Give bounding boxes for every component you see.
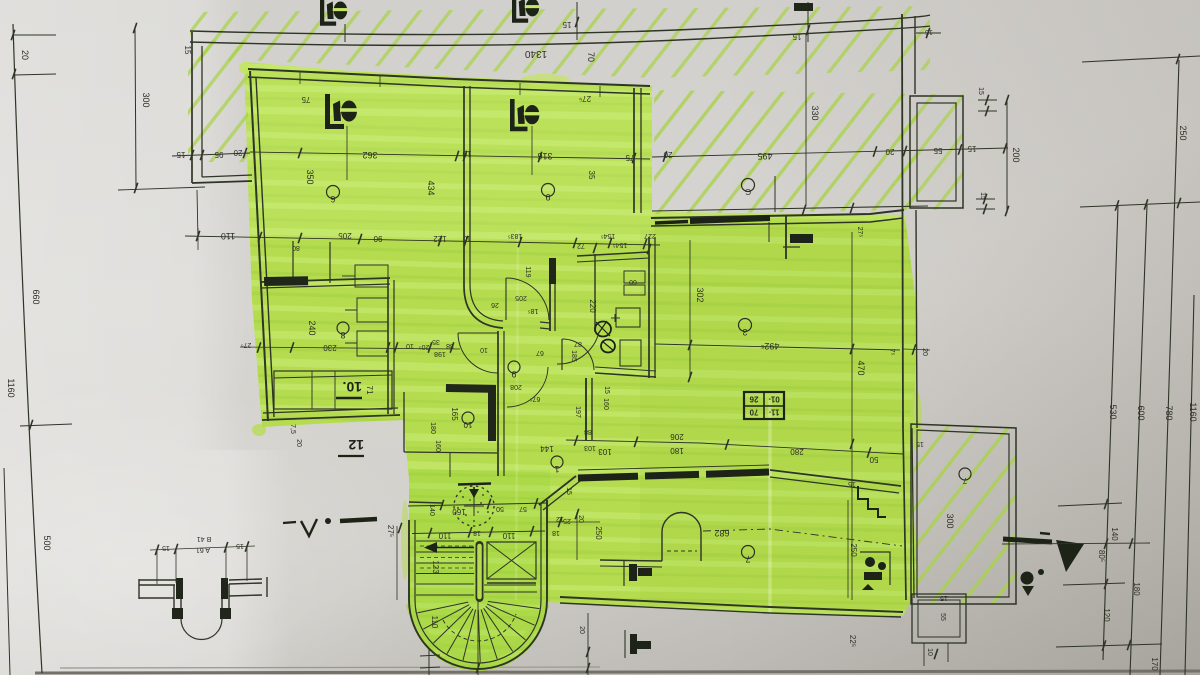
svg-text:250: 250 [849, 543, 858, 557]
svg-text:25: 25 [563, 517, 571, 524]
svg-text:495: 495 [757, 151, 772, 161]
svg-text:154⁵: 154⁵ [601, 232, 616, 239]
svg-text:1: 1 [554, 464, 559, 474]
svg-text:682: 682 [714, 528, 729, 538]
svg-text:165: 165 [450, 407, 459, 421]
svg-text:20: 20 [20, 50, 30, 60]
svg-text:35: 35 [432, 338, 440, 345]
svg-text:140: 140 [1110, 527, 1119, 541]
svg-text:B 41: B 41 [197, 535, 212, 542]
svg-text:120: 120 [1102, 608, 1111, 622]
svg-text:57: 57 [519, 505, 527, 512]
svg-text:10.: 10. [343, 379, 362, 395]
svg-text:7: 7 [745, 554, 750, 564]
svg-text:67: 67 [536, 349, 544, 356]
svg-text:205: 205 [338, 231, 352, 240]
svg-text:95: 95 [214, 150, 223, 159]
svg-text:110: 110 [221, 231, 235, 241]
svg-text:15: 15 [916, 440, 924, 447]
svg-text:316: 316 [537, 151, 552, 161]
svg-text:27⁵: 27⁵ [856, 227, 863, 238]
svg-text:7⁵: 7⁵ [888, 349, 895, 356]
svg-text:6: 6 [330, 194, 335, 204]
svg-text:7: 7 [962, 476, 967, 485]
svg-text:67⁵: 67⁵ [530, 395, 541, 402]
svg-text:88: 88 [584, 428, 592, 435]
svg-text:27⁵: 27⁵ [241, 341, 252, 348]
svg-text:15: 15 [176, 150, 185, 159]
svg-text:70: 70 [586, 52, 596, 62]
svg-text:302: 302 [695, 287, 705, 302]
svg-text:103: 103 [584, 444, 596, 451]
svg-text:75: 75 [625, 153, 634, 162]
svg-text:9: 9 [545, 192, 550, 202]
svg-text:300: 300 [141, 92, 151, 107]
svg-text:20⁵: 20⁵ [419, 343, 430, 350]
svg-text:35: 35 [587, 171, 596, 180]
svg-text:160: 160 [452, 507, 466, 516]
svg-text:300: 300 [945, 513, 955, 528]
svg-text:160: 160 [434, 440, 441, 452]
svg-text:15: 15 [162, 544, 170, 551]
svg-text:170: 170 [1150, 657, 1159, 671]
svg-text:160: 160 [602, 398, 609, 410]
svg-text:20: 20 [885, 147, 894, 156]
svg-text:1160: 1160 [6, 378, 16, 397]
svg-text:240: 240 [307, 320, 317, 335]
svg-text:140: 140 [428, 504, 435, 516]
svg-text:50: 50 [869, 455, 878, 464]
svg-text:185: 185 [570, 350, 577, 362]
svg-text:250: 250 [594, 526, 603, 540]
svg-text:20: 20 [295, 439, 302, 447]
svg-text:10: 10 [926, 648, 933, 656]
svg-text:18: 18 [552, 529, 560, 536]
svg-text:15: 15 [979, 192, 986, 200]
svg-text:90: 90 [373, 234, 382, 243]
svg-text:197: 197 [574, 406, 581, 418]
svg-text:154⁵: 154⁵ [613, 241, 628, 248]
svg-text:70: 70 [749, 408, 758, 417]
svg-text:122: 122 [433, 234, 447, 243]
svg-text:87: 87 [574, 340, 582, 347]
svg-text:A 61: A 61 [196, 546, 210, 553]
svg-text:200: 200 [1011, 147, 1021, 162]
svg-text:500: 500 [42, 535, 52, 550]
svg-text:11·: 11· [768, 408, 779, 417]
svg-text:G: G [745, 187, 751, 196]
svg-text:330: 330 [810, 105, 820, 120]
svg-text:183⁵: 183⁵ [508, 232, 523, 239]
svg-text:1160: 1160 [1188, 402, 1198, 421]
svg-text:180: 180 [1132, 582, 1141, 596]
svg-text:26: 26 [749, 395, 758, 404]
svg-text:205: 205 [515, 294, 527, 301]
svg-text:8: 8 [340, 330, 345, 340]
svg-text:20: 20 [921, 348, 928, 356]
svg-text:01·: 01· [768, 395, 780, 404]
svg-text:18⁵: 18⁵ [528, 307, 539, 314]
svg-text:180: 180 [429, 422, 436, 434]
svg-text:144: 144 [540, 444, 554, 453]
svg-text:20: 20 [233, 148, 242, 157]
svg-text:20: 20 [663, 150, 672, 159]
svg-text:15: 15 [940, 594, 948, 601]
svg-text:119: 119 [524, 266, 531, 277]
svg-text:15: 15 [792, 32, 801, 41]
svg-text:27⁵: 27⁵ [579, 94, 591, 103]
svg-text:180: 180 [670, 446, 684, 455]
svg-text:110: 110 [438, 531, 451, 540]
svg-text:27⁵: 27⁵ [386, 525, 395, 537]
svg-text:88: 88 [446, 342, 454, 349]
svg-text:10: 10 [406, 342, 414, 349]
svg-text:530: 530 [1108, 404, 1118, 419]
svg-text:110: 110 [430, 616, 439, 629]
svg-text:600: 600 [1136, 405, 1146, 420]
svg-text:15: 15 [562, 20, 571, 29]
svg-text:80: 80 [292, 244, 300, 251]
svg-text:50: 50 [496, 505, 504, 512]
svg-text:250: 250 [1178, 125, 1188, 140]
svg-text:15: 15 [603, 386, 610, 394]
svg-text:434: 434 [426, 180, 436, 195]
svg-text:198: 198 [434, 350, 446, 357]
svg-text:3: 3 [742, 327, 747, 337]
svg-text:71: 71 [365, 386, 374, 395]
svg-text:15: 15 [848, 480, 856, 487]
svg-text:7,5: 7,5 [289, 424, 296, 434]
svg-text:1340: 1340 [524, 48, 547, 59]
svg-text:26: 26 [491, 301, 499, 308]
svg-text:227: 227 [644, 232, 656, 239]
svg-text:350: 350 [305, 169, 315, 184]
svg-text:10: 10 [463, 420, 472, 429]
svg-text:362: 362 [362, 150, 377, 160]
svg-text:220: 220 [588, 299, 597, 313]
svg-text:75: 75 [301, 95, 310, 104]
svg-text:72: 72 [577, 242, 585, 249]
svg-text:470: 470 [856, 360, 866, 375]
svg-text:12: 12 [348, 437, 364, 453]
svg-text:20: 20 [578, 626, 585, 634]
svg-text:110: 110 [502, 531, 515, 540]
svg-text:18: 18 [473, 529, 481, 536]
svg-text:22⁵: 22⁵ [848, 635, 857, 647]
svg-text:123: 123 [431, 560, 440, 574]
svg-text:660: 660 [31, 289, 41, 304]
svg-text:208: 208 [510, 383, 522, 390]
svg-text:10: 10 [462, 149, 471, 158]
svg-text:55: 55 [939, 613, 946, 621]
svg-text:15: 15 [236, 542, 244, 549]
svg-text:280: 280 [790, 447, 804, 456]
svg-text:206: 206 [670, 432, 684, 441]
svg-text:15: 15 [977, 87, 984, 95]
svg-text:15: 15 [183, 46, 192, 55]
svg-text:780: 780 [1164, 405, 1174, 420]
svg-text:15: 15 [925, 28, 933, 35]
svg-text:60: 60 [629, 278, 637, 285]
svg-text:15: 15 [565, 487, 572, 495]
svg-text:80⁵: 80⁵ [1097, 550, 1106, 562]
svg-text:15: 15 [967, 144, 976, 153]
svg-text:55: 55 [933, 146, 942, 155]
svg-text:10: 10 [480, 346, 488, 353]
svg-text:103: 103 [598, 447, 612, 456]
svg-text:492⁵: 492⁵ [760, 341, 779, 351]
svg-text:10: 10 [463, 234, 471, 241]
svg-text:9: 9 [511, 369, 516, 379]
